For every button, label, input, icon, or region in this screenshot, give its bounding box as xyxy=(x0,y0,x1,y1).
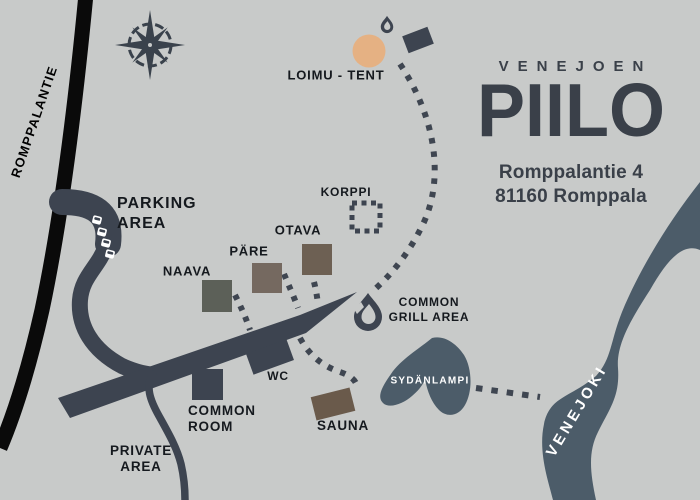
label-parking-line1: PARKING xyxy=(117,195,197,212)
label-pare: PÄRE xyxy=(229,245,268,260)
brand-address-line2: 81160 Romppala xyxy=(455,185,687,209)
label-common-room-line1: COMMON xyxy=(188,403,256,418)
loimu-tent-spot xyxy=(353,35,386,68)
trail-loimu-tent xyxy=(374,64,435,290)
trail-sauna xyxy=(300,338,357,390)
label-private-line1: PRIVATE xyxy=(110,443,172,458)
public-road-shape xyxy=(0,0,86,448)
label-sauna: SAUNA xyxy=(317,418,369,434)
trail-lake-river xyxy=(476,388,540,397)
building-otava xyxy=(302,244,332,275)
label-parking-line2: AREA xyxy=(117,215,166,232)
parking-loop-shape xyxy=(62,202,109,244)
compass-rose-icon xyxy=(115,10,185,80)
building-sauna xyxy=(311,388,356,421)
label-common-grill-area: COMMONGRILL AREA xyxy=(389,295,470,325)
brand-address: Romppalantie 4 81160 Romppala xyxy=(455,161,687,209)
brand-address-line1: Romppalantie 4 xyxy=(455,161,687,185)
label-loimu-tent: LOIMU - TENT xyxy=(288,69,385,84)
korppi-dashed-marker xyxy=(352,203,380,231)
label-grill-line1: COMMON xyxy=(399,295,460,309)
campfire-icon xyxy=(381,16,393,33)
label-parking-area: PARKINGAREA xyxy=(117,194,197,233)
building-naava xyxy=(202,280,232,312)
label-grill-line2: GRILL AREA xyxy=(389,310,470,324)
site-map: VENEJOEN PIILO Romppalantie 4 81160 Romp… xyxy=(0,0,700,500)
trail-otava xyxy=(314,282,318,304)
private-branch-road xyxy=(149,374,185,500)
label-wc: WC xyxy=(267,370,289,384)
trail-naava xyxy=(235,295,250,330)
brand-name-label: PIILO xyxy=(455,76,687,147)
grill-flame-icon xyxy=(354,293,382,331)
label-private-line2: AREA xyxy=(120,459,161,474)
parking-access-road xyxy=(80,246,163,375)
label-common-room: COMMONROOM xyxy=(188,403,256,435)
label-lake-sydanlampi: SYDÄNLAMPI xyxy=(390,375,469,387)
building-common-room xyxy=(192,369,223,400)
label-korppi: KORPPI xyxy=(321,186,372,200)
river-shape xyxy=(542,182,700,500)
building-pare xyxy=(252,263,282,293)
trail-pare xyxy=(284,274,298,308)
label-private-area: PRIVATEAREA xyxy=(110,443,172,475)
label-naava: NAAVA xyxy=(163,265,211,280)
building-loimu-shelter xyxy=(402,27,434,53)
label-otava: OTAVA xyxy=(275,224,322,239)
brand-block: VENEJOEN PIILO Romppalantie 4 81160 Romp… xyxy=(455,58,687,209)
label-common-room-line2: ROOM xyxy=(188,419,233,434)
